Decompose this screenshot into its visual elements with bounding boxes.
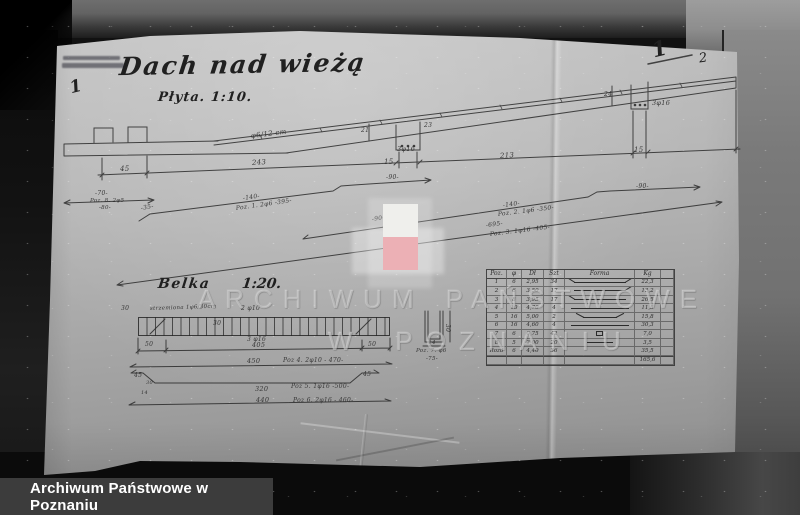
table-cell: 5,00 [522,313,544,322]
archive-caption-bar: Archiwum Państwowe w Poznaniu [0,478,273,515]
dim-label: -90- [386,175,399,181]
table-cell: 30,3 [635,322,661,331]
dim-label: 30 [121,306,129,312]
table-cell [544,356,565,365]
table-cell: 3,5 [635,339,661,348]
dim-label: 30 [146,381,153,386]
dim-label: 440 [256,397,269,404]
table-header-cell: φ [507,270,522,279]
table-header-cell: Szt [544,270,565,279]
dim-label: 213 [500,152,515,160]
table-header-cell: Dł [522,270,544,279]
dim-label: 320 [255,386,268,393]
table-cell [487,356,507,365]
dim-label: 243 [252,159,267,167]
dim-label: -140- [243,194,261,202]
table-cell: 5 [487,313,507,322]
watermark-text-line1: ARCHIWUMPAŃSTWOWE [198,286,707,312]
table-cell [565,313,635,322]
dim-label: -70- [95,191,108,197]
watermark-flag-white [383,204,418,237]
archive-caption: Archiwum Państwowe w Poznaniu [0,480,273,514]
watermark-word: POZNANIU [396,326,634,356]
dim-label: 3φ16 [397,146,415,153]
bar-shape-hooks-up [574,282,626,283]
table-cell [661,347,674,356]
dim-label: -35- [140,204,154,212]
dim-label: 3φ16 [652,100,670,107]
table-header-cell [661,270,674,279]
table-cell [661,313,674,322]
watermark-word: PAŃSTWOWE [446,284,707,314]
dim-label: 45 [134,373,142,379]
archive-photo: Dach nad wieżą Płyta. 1:10. Belka 1:20. … [0,0,800,515]
dim-label: -80- [99,206,111,212]
table-cell: 2 [544,313,565,322]
table-cell: 7,0 [635,330,661,339]
dim-label: Poz 5. 1φ16 -500- [291,384,349,390]
dim-label: 23 [424,123,432,129]
dim-label: -695- [486,221,504,229]
table-cell [661,330,674,339]
bar-shape-trapezoid [583,317,617,318]
dim-label: 24 [604,92,612,98]
dim-label: 15 [384,159,394,166]
table-cell [661,339,674,348]
table-header-cell: Forma [565,270,635,279]
table-header-cell: Poz. [487,270,507,279]
table-cell [661,322,674,331]
watermark-word: ARCHIWUM [198,284,424,314]
dim-label: 405 [252,342,265,349]
dim-label: -75- [426,357,438,363]
dim-label: φ6/12 cm [251,129,287,140]
dim-label: 50 [145,342,153,348]
table-cell [661,356,674,365]
table-cell: 16 [507,313,522,322]
dim-label: 45 [120,166,130,173]
dim-label: 30 [213,321,221,327]
dim-label: 15 [634,147,644,154]
table-cell: 35,5 [635,347,661,356]
watermark-text-line2: WPOZNANIU [328,328,634,354]
table-cell [507,356,522,365]
table-cell [522,356,544,365]
dim-label: 14 [141,391,148,396]
dim-label: 450 [247,358,260,365]
dim-label: Poz 4. 2φ10 - 470- [283,358,343,364]
dim-label: -90- [636,184,649,190]
dim-label: 21 [361,128,369,134]
table-cell [565,356,635,365]
table-header-cell: Kg [635,270,661,279]
watermark-flag-red [383,237,418,270]
dim-label: 45 [363,372,371,378]
watermark-word: W [328,326,366,356]
dim-label: Poz 6. 2φ16 - 460- [293,398,353,404]
table-cell: 165,6 [635,356,661,365]
table-cell: 15,8 [635,313,661,322]
dim-label: Poz. 8. 2φ5 [90,199,124,205]
